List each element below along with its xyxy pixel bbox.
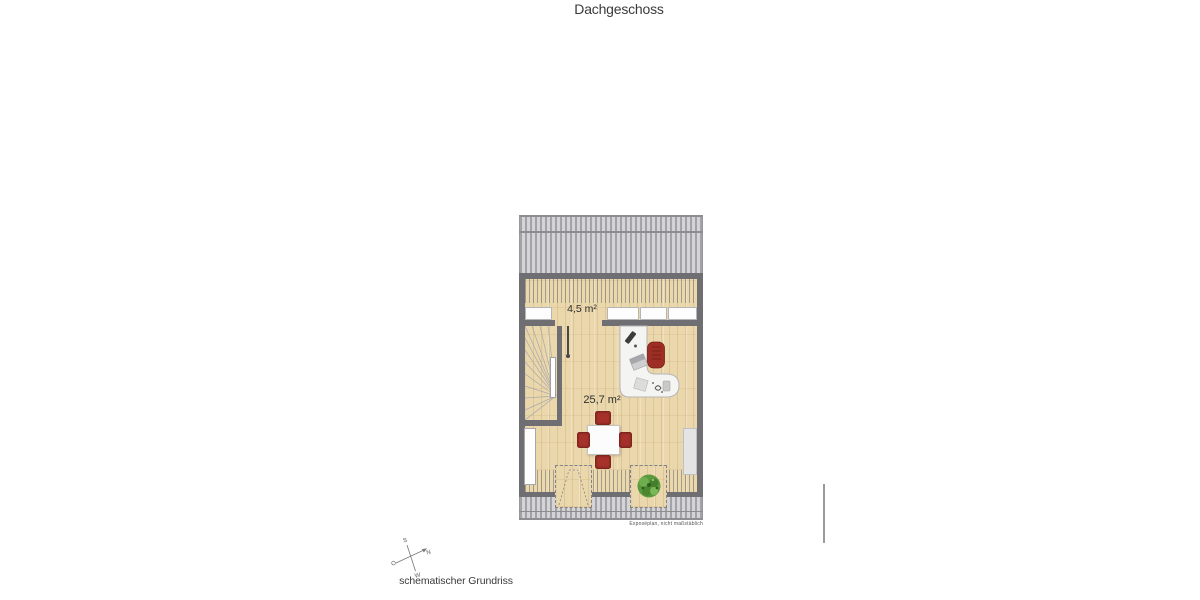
- plant-icon: [635, 472, 663, 500]
- compass-label-s: S: [403, 538, 408, 545]
- desk-chair: [648, 342, 665, 368]
- window-left: [524, 428, 536, 485]
- dormer-right: [630, 465, 667, 508]
- roof-eave-line: [519, 511, 703, 512]
- desk-group: [618, 325, 682, 417]
- roof-deck-bottom: [519, 497, 703, 518]
- dining-chair-top: [595, 411, 611, 425]
- compass-label-n: N: [426, 550, 432, 557]
- roof-ridge-line: [519, 231, 703, 233]
- compass-label-o: O: [391, 560, 397, 567]
- roof-bottom-edge: [519, 518, 703, 520]
- dining-table: [587, 425, 620, 455]
- wall-right: [697, 273, 703, 497]
- storage-box: [525, 307, 552, 320]
- divider-line: [823, 484, 825, 543]
- storage-box: [640, 307, 667, 320]
- storage-box: [607, 307, 639, 320]
- compass-rose: S N O W: [385, 532, 435, 580]
- dormer-slope-lines: [556, 466, 591, 507]
- sloped-ceiling-hatch-bottom: [525, 470, 697, 492]
- sideboard-right: [683, 428, 697, 475]
- door-leaf: [567, 326, 569, 354]
- stairwell-wall-bottom: [519, 420, 562, 426]
- plan-caption: schematischer Grundriss: [376, 575, 536, 591]
- stairwell-wall-right: [557, 326, 562, 426]
- stair-handrail: [550, 357, 556, 398]
- floor-plan: 4,5 m² 25,7 m² Exposéplan, nicht maßstäb…: [519, 215, 703, 520]
- roof-deck-top: [519, 215, 703, 273]
- plan-disclaimer: Exposéplan, nicht maßstäblich: [563, 521, 703, 527]
- dormer-left: [555, 465, 592, 508]
- wall-top: [519, 273, 703, 279]
- sloped-ceiling-hatch-top: [525, 279, 697, 303]
- dining-chair-left: [577, 432, 590, 448]
- wall-bottom: [519, 492, 703, 497]
- dining-chair-right: [619, 432, 632, 448]
- area-label-large: 25,7 m²: [579, 394, 625, 406]
- door-stop-dot: [566, 354, 570, 358]
- floorplan-page: Dachgeschoss: [0, 0, 1200, 600]
- page-title: Dachgeschoss: [529, 0, 709, 20]
- area-label-small: 4,5 m²: [559, 303, 605, 315]
- dining-chair-bottom: [595, 455, 611, 469]
- storage-box: [668, 307, 697, 320]
